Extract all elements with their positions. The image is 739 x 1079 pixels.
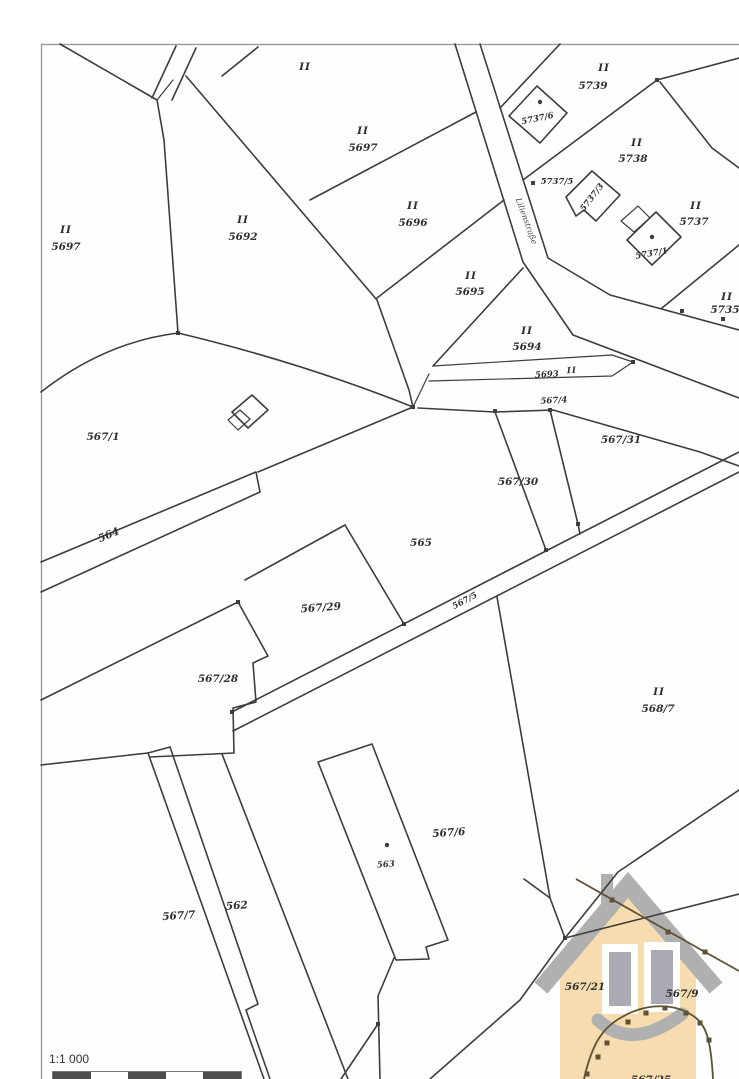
parcel-label: II [630,137,643,149]
window-left [609,952,631,1006]
scale-bar-segment [166,1072,204,1079]
boundary-marker [176,331,180,335]
parcel-label: 567/6 [432,826,467,840]
scale-bar-segment [203,1072,241,1079]
boundary-marker [236,600,240,604]
boundary-marker [680,309,684,313]
scale-bar-segment [91,1072,129,1079]
building-dot [650,235,654,239]
survey-marker [605,1041,610,1046]
scale-text: 1:1 000 [49,1052,89,1066]
survey-marker [626,1020,631,1025]
parcel-label: II [597,62,610,74]
boundary-marker [402,622,406,626]
survey-marker [703,950,708,955]
parcel-label: 567/28 [198,673,239,685]
boundary-marker [548,408,552,412]
survey-marker [610,898,615,903]
parcel-label: II [298,61,311,73]
parcel-label: II [356,125,369,137]
parcel-label: II [689,200,702,212]
parcel-label: 5697 [348,142,378,154]
survey-marker [666,930,671,935]
parcel-label: 5737 [679,216,709,228]
boundary-marker [531,181,535,185]
parcel-label: 5697 [51,241,81,253]
survey-marker [585,1072,590,1077]
cadastral-map: II5697IIII5692II5697II5696II5695II5694II… [0,0,739,1079]
parcel-label: 5739 [578,80,608,92]
parcel-label: 5694 [512,341,541,353]
parcel-label: 565 [410,537,432,549]
survey-marker [684,1011,689,1016]
parcel-label: 567/25 [631,1074,671,1079]
cadastral-map-page: II5697IIII5692II5697II5696II5695II5694II… [0,0,739,1079]
parcel-label: II [236,214,249,226]
parcel-label: 5693 [535,369,559,380]
boundary-marker [230,710,234,714]
parcel-label: II [464,270,477,282]
parcel-label: 563 [377,859,395,870]
parcel-label: II [59,224,72,236]
scale-bar [52,1071,242,1079]
parcel-label: II [566,366,577,377]
scale-bar-segment [128,1072,166,1079]
parcel-label: 567/21 [565,981,605,993]
parcel-label: 5737/5 [541,177,574,187]
parcel-label: II [406,200,419,212]
scale-bar-segment [53,1072,91,1079]
parcel-label: II [652,686,665,698]
parcel-label: 567/4 [540,395,567,406]
building-dot [538,100,542,104]
boundary-marker [631,360,635,364]
survey-marker [644,1011,649,1016]
boundary-marker [411,405,415,409]
parcel-label: 568/7 [641,703,675,715]
survey-marker [596,1055,601,1060]
boundary-marker [544,548,548,552]
survey-marker [663,1006,668,1011]
boundary-marker [721,317,725,321]
parcel-label: II [520,325,533,337]
boundary-marker [576,522,580,526]
boundary-marker [655,78,659,82]
building-dot [385,843,389,847]
parcel-label: 5692 [228,231,257,243]
parcel-label: 567/9 [665,988,699,1000]
parcel-label: II [720,291,733,303]
parcel-label: 567/1 [86,431,119,443]
boundary-marker [376,1022,380,1026]
boundary-marker [563,936,567,940]
parcel-label: 567/31 [601,434,641,446]
parcel-label: 567/30 [498,476,539,488]
survey-marker [707,1038,712,1043]
parcel-label: 5738 [618,153,648,165]
parcel-label: 5695 [455,286,484,298]
parcel-label: 562 [225,899,248,912]
parcel-label: 5735 [710,304,739,316]
survey-marker [698,1021,703,1026]
parcel-label: 5696 [398,217,428,229]
boundary-marker [493,409,497,413]
parcel-label: 567/7 [162,909,197,923]
